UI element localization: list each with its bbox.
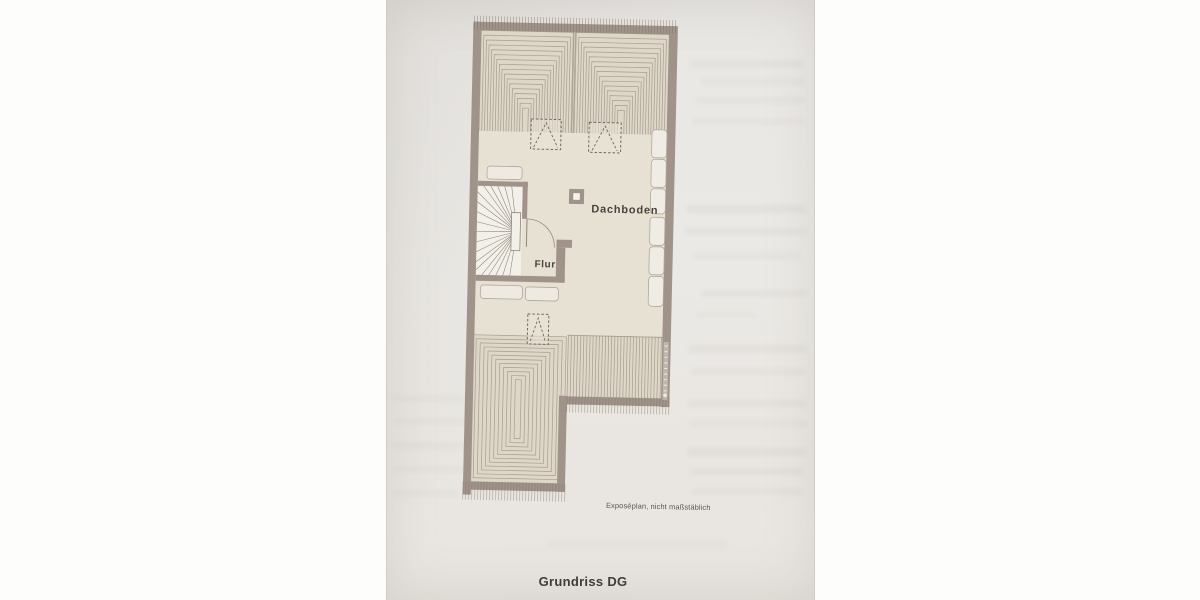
bleed-through-smudge — [696, 97, 804, 104]
bleed-through-smudge — [696, 312, 756, 318]
bleed-through-smudge — [687, 448, 807, 456]
floor-plan-drawing: Dachboden Flur — [452, 12, 698, 517]
bleed-through-smudge — [393, 490, 459, 497]
floor-plan: Dachboden Flur — [452, 12, 698, 517]
bleed-through-smudge — [701, 290, 807, 297]
chimney — [569, 189, 584, 204]
room-label-flur: Flur — [534, 259, 556, 270]
bleed-through-smudge — [689, 60, 804, 68]
staircase — [476, 186, 523, 276]
plan-graphics — [463, 16, 678, 505]
page-caption: Grundriss DG — [539, 574, 628, 589]
bleed-through-smudge — [693, 252, 801, 259]
bleed-through-smudge — [689, 345, 807, 353]
bleed-through-smudge — [701, 78, 806, 85]
room-label-dachboden: Dachboden — [591, 203, 658, 217]
bleed-through-smudge — [393, 395, 463, 402]
bleed-through-smudge — [689, 468, 804, 475]
bleed-through-smudge — [691, 488, 803, 495]
bleed-through-smudge — [689, 420, 807, 427]
bleed-through-smudge — [691, 118, 803, 125]
bleed-through-smudge — [691, 368, 806, 375]
bleed-through-smudge — [685, 228, 807, 235]
bleed-through-smudge — [547, 540, 727, 548]
bleed-through-smudge — [687, 400, 807, 407]
roof-hatch-top — [479, 30, 669, 135]
bleed-through-smudge — [687, 205, 807, 213]
